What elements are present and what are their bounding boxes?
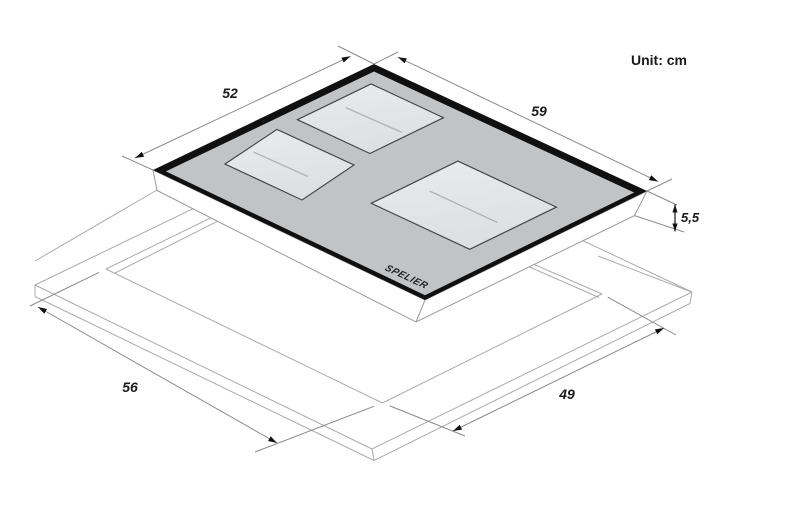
svg-text:52: 52 — [222, 85, 238, 101]
svg-text:59: 59 — [531, 103, 547, 119]
svg-text:Unit: cm: Unit: cm — [631, 52, 687, 68]
svg-text:56: 56 — [122, 379, 138, 395]
svg-text:5,5: 5,5 — [681, 210, 700, 225]
svg-text:49: 49 — [558, 386, 575, 402]
